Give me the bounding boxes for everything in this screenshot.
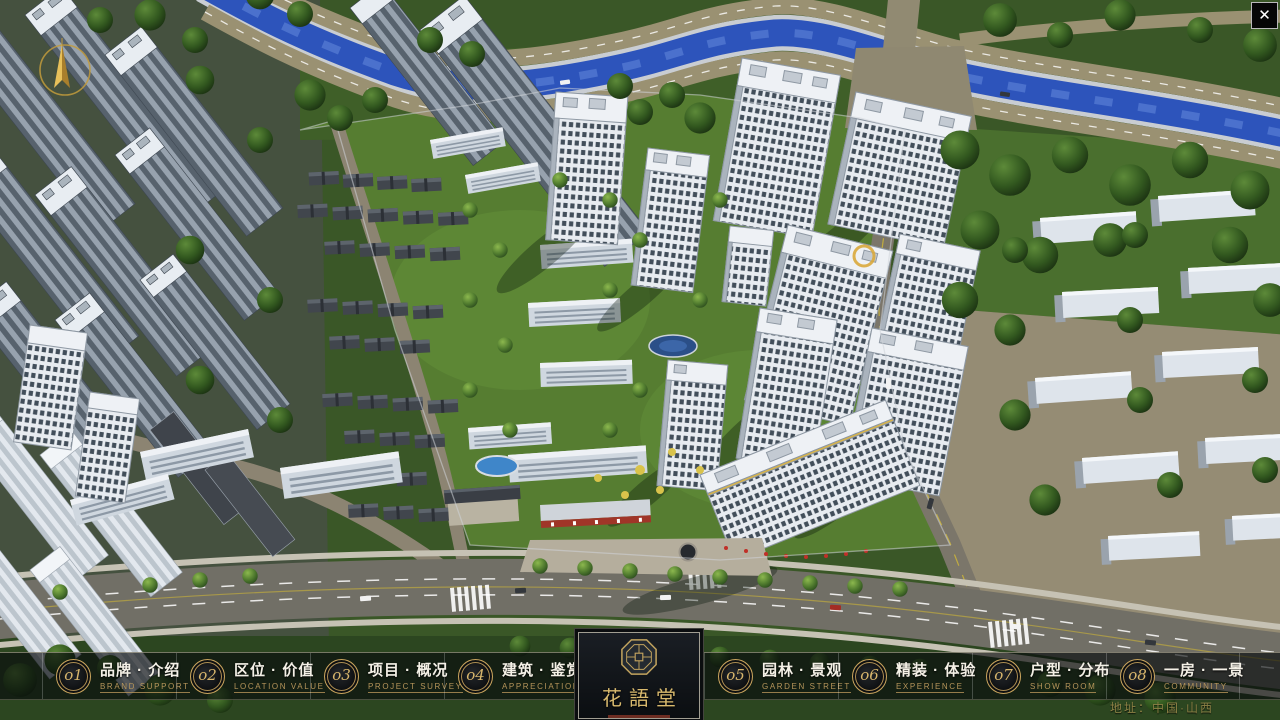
nav-label: 项目 · 概况 xyxy=(368,659,448,680)
nav-item-garden[interactable]: o5 园林 · 景观 GARDEN STREET xyxy=(704,653,838,699)
address-text: 地址：中国·山西 xyxy=(1110,699,1214,716)
nav-sublabel: SHOW ROOM xyxy=(1030,682,1096,693)
nav-label: 一房 · 一景 xyxy=(1164,659,1244,680)
nav-number-badge: o4 xyxy=(458,659,493,694)
nav-label: 建筑 · 鉴赏 xyxy=(502,659,582,680)
nav-number-badge: o2 xyxy=(190,659,225,694)
nav-item-floorplan[interactable]: o7 户型 · 分布 SHOW ROOM xyxy=(972,653,1106,699)
site-plan-render xyxy=(0,0,1280,720)
nav-item-brand[interactable]: o1 品牌 · 介绍 BRAND SUPPORT xyxy=(42,653,176,699)
logo-tagline xyxy=(608,715,670,718)
nav-item-architecture[interactable]: o4 建筑 · 鉴赏 APPRECIATION xyxy=(444,653,578,699)
nav-item-location[interactable]: o2 区位 · 价值 LOCATION VALUE xyxy=(176,653,310,699)
nav-item-project[interactable]: o3 项目 · 概况 PROJECT SURVEY xyxy=(310,653,444,699)
nav-sublabel: EXPERIENCE xyxy=(896,682,964,693)
seal-emblem-icon xyxy=(620,638,658,676)
nav-sublabel: APPRECIATION xyxy=(502,682,580,693)
nav-number-badge: o7 xyxy=(986,659,1021,694)
nav-divider xyxy=(1239,653,1240,699)
nav-label: 户型 · 分布 xyxy=(1030,659,1110,680)
nav-item-view[interactable]: o8 一房 · 一景 COMMUNITY xyxy=(1106,653,1240,699)
close-button[interactable]: ✕ xyxy=(1251,2,1278,29)
nav-number-badge: o1 xyxy=(56,659,91,694)
nav-number-badge: o8 xyxy=(1120,659,1155,694)
compass-icon xyxy=(34,36,96,98)
nav-label: 园林 · 景观 xyxy=(762,659,842,680)
logo-panel[interactable]: 花語堂 xyxy=(578,632,700,719)
close-icon: ✕ xyxy=(1258,7,1271,24)
nav-item-interior[interactable]: o6 精装 · 体验 EXPERIENCE xyxy=(838,653,972,699)
nav-number-badge: o5 xyxy=(718,659,753,694)
nav-label: 品牌 · 介绍 xyxy=(100,659,180,680)
nav-label: 精装 · 体验 xyxy=(896,659,976,680)
nav-number-badge: o6 xyxy=(852,659,887,694)
logo-title: 花語堂 xyxy=(579,682,699,711)
nav-sublabel: COMMUNITY xyxy=(1164,682,1228,693)
nav-label: 区位 · 价值 xyxy=(234,659,314,680)
nav-number-badge: o3 xyxy=(324,659,359,694)
